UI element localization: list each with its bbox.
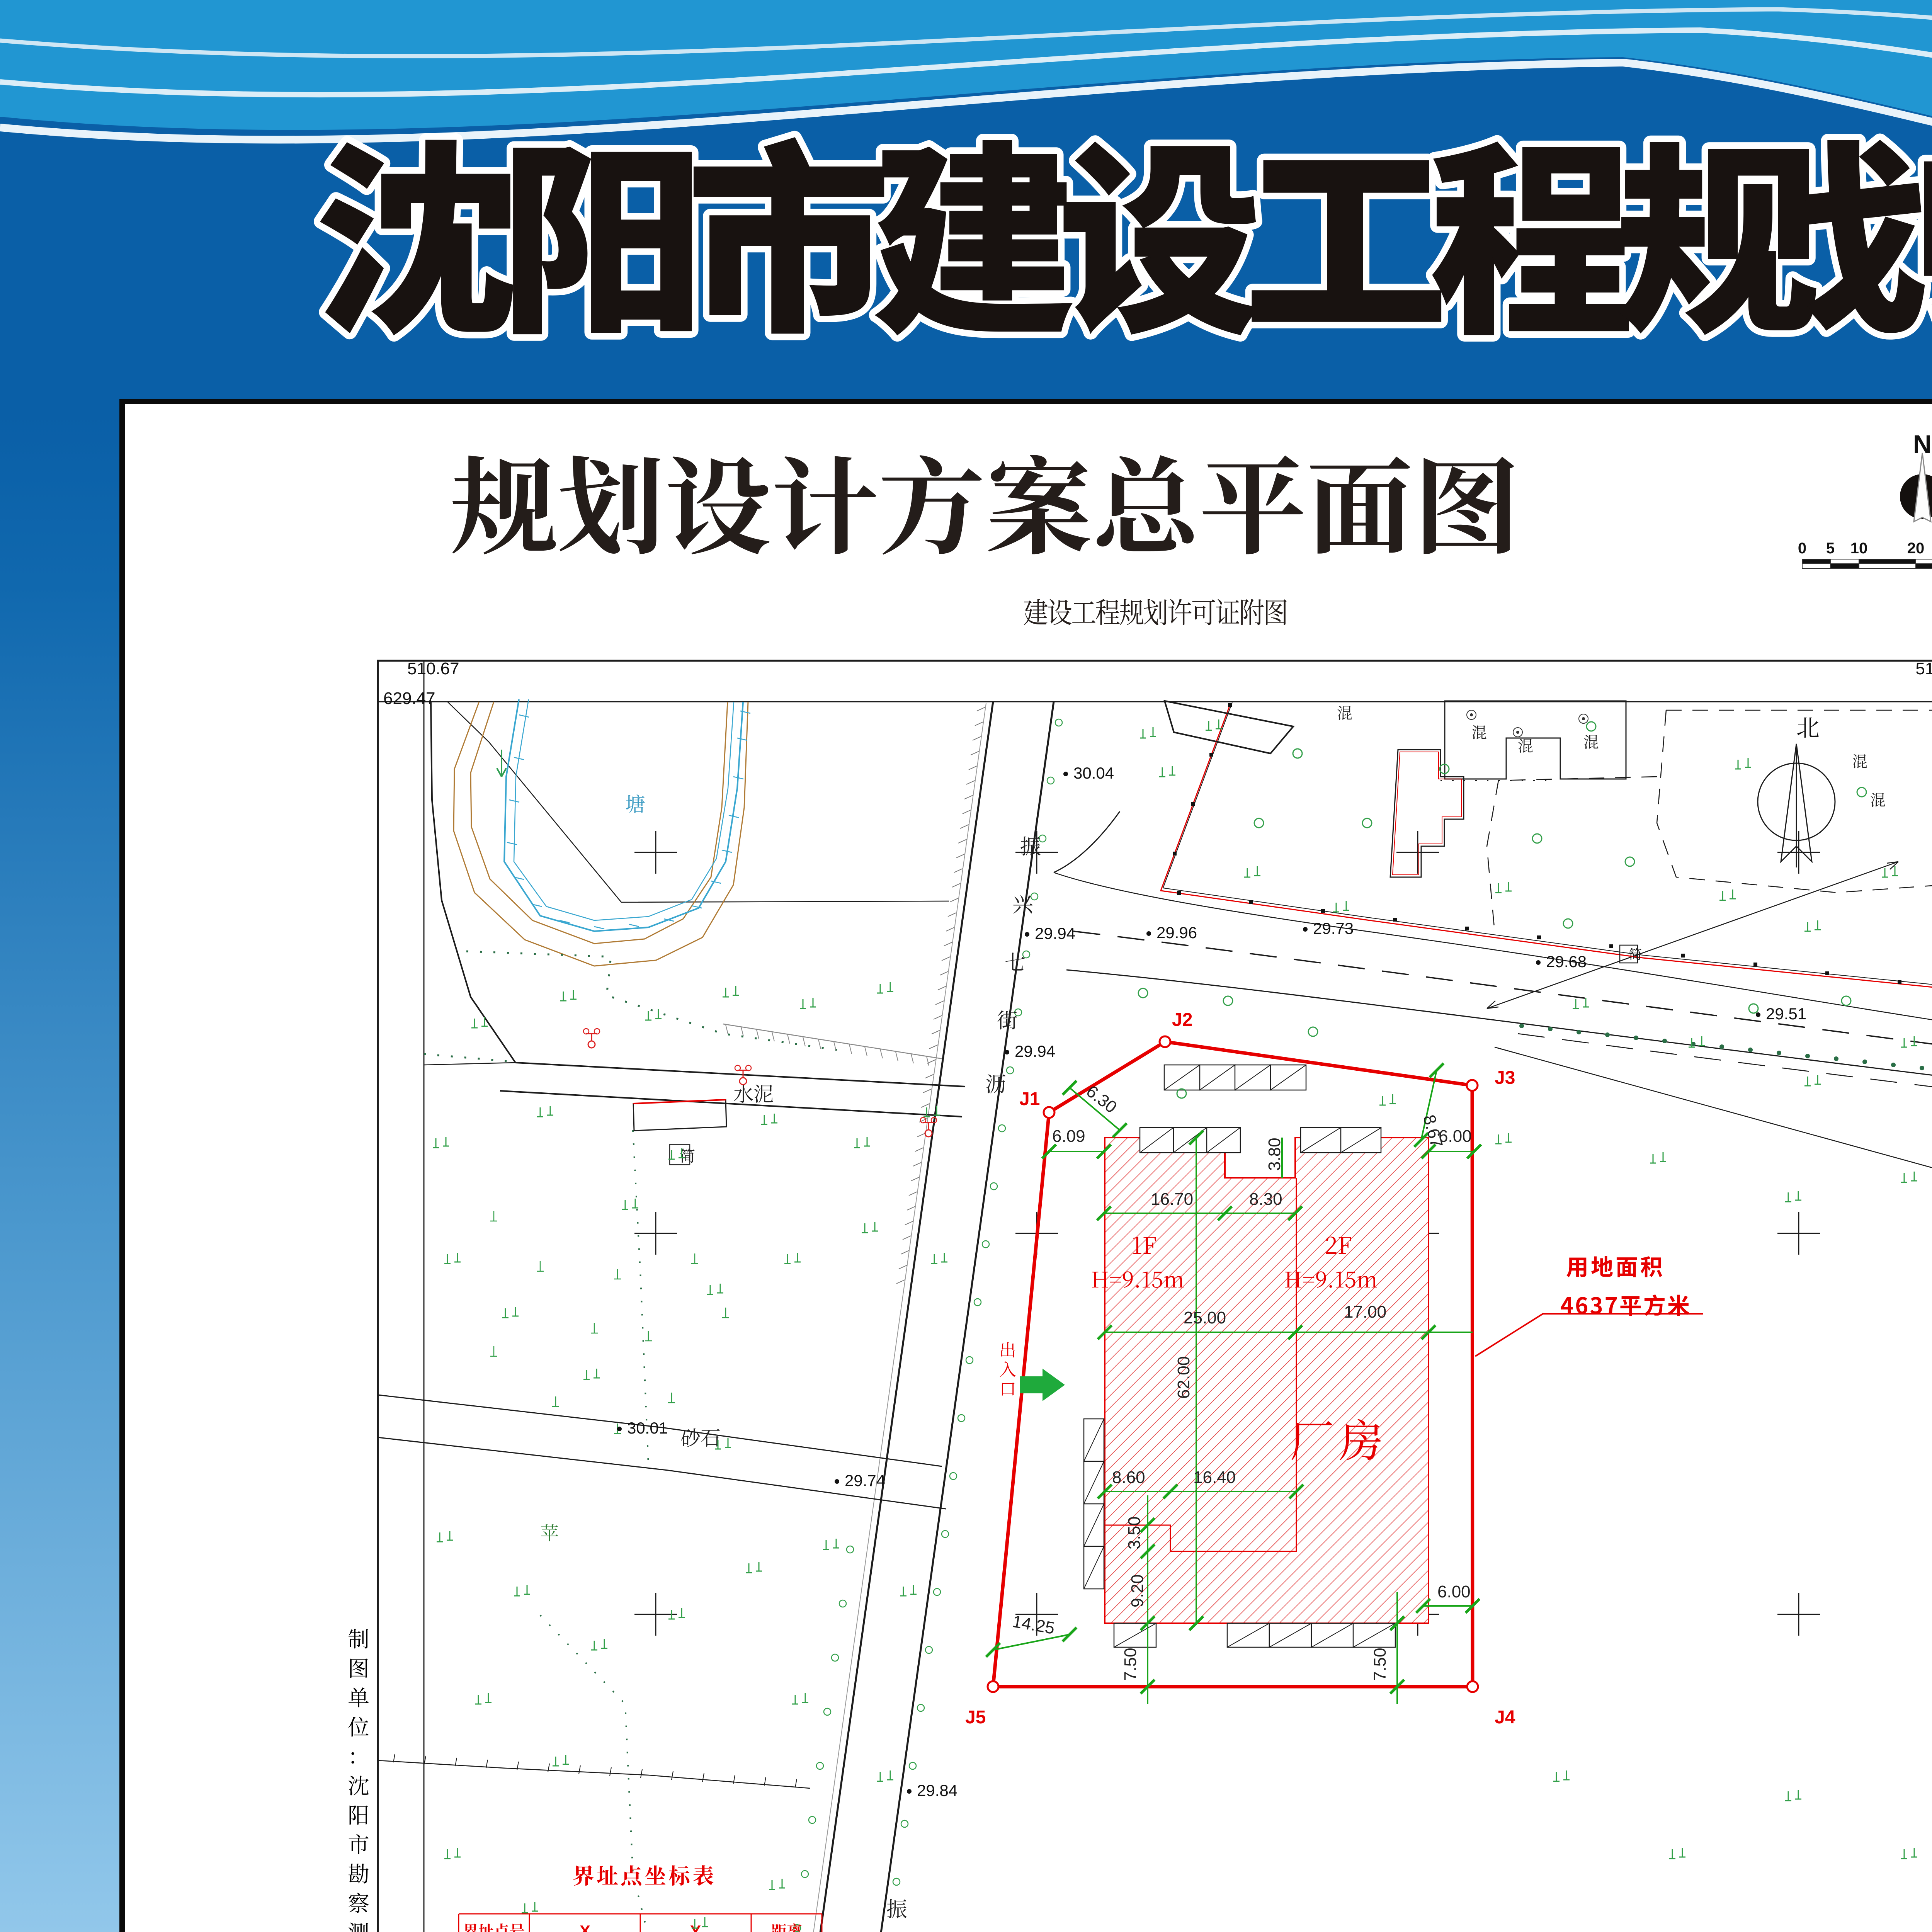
svg-text:629.47: 629.47	[383, 689, 435, 708]
svg-text:25.00: 25.00	[1184, 1308, 1226, 1327]
svg-text:7.50: 7.50	[1371, 1648, 1389, 1681]
svg-text:5: 5	[1826, 540, 1835, 557]
svg-text:J4: J4	[1495, 1707, 1515, 1728]
svg-text:J5: J5	[965, 1707, 986, 1728]
svg-text:29.51: 29.51	[1766, 1005, 1806, 1023]
svg-text:16.70: 16.70	[1151, 1190, 1193, 1209]
svg-text:510.86: 510.86	[1915, 659, 1932, 678]
svg-text:29.94: 29.94	[1035, 924, 1075, 942]
svg-text:3.80: 3.80	[1265, 1138, 1284, 1171]
svg-text:Y: Y	[690, 1922, 701, 1932]
svg-text:510.67: 510.67	[407, 659, 459, 678]
svg-text:6.00: 6.00	[1437, 1582, 1471, 1601]
svg-text:20: 20	[1907, 540, 1925, 557]
svg-text:9.20: 9.20	[1128, 1574, 1147, 1607]
svg-text:30.01: 30.01	[627, 1419, 668, 1437]
svg-text:17.00: 17.00	[1344, 1303, 1386, 1321]
svg-text:8.30: 8.30	[1249, 1190, 1282, 1209]
svg-text:X: X	[580, 1922, 590, 1932]
svg-text:7.50: 7.50	[1121, 1648, 1140, 1681]
svg-text:16.40: 16.40	[1193, 1468, 1236, 1487]
svg-text:3.50: 3.50	[1125, 1516, 1144, 1549]
svg-text:29.73: 29.73	[1313, 919, 1354, 937]
svg-text:29.74: 29.74	[845, 1471, 885, 1490]
svg-text:29.94: 29.94	[1015, 1042, 1055, 1060]
svg-text:10: 10	[1850, 540, 1868, 557]
svg-text:62.00: 62.00	[1174, 1356, 1193, 1399]
svg-text:29.96: 29.96	[1156, 923, 1197, 942]
svg-text:J1: J1	[1019, 1089, 1040, 1109]
svg-text:J2: J2	[1172, 1010, 1192, 1030]
svg-text:29.84: 29.84	[917, 1781, 957, 1799]
svg-text:8.60: 8.60	[1112, 1468, 1145, 1487]
svg-text:0: 0	[1798, 540, 1806, 557]
svg-text:6.09: 6.09	[1052, 1127, 1085, 1146]
svg-text:6.00: 6.00	[1439, 1127, 1472, 1146]
svg-text:J3: J3	[1495, 1068, 1515, 1088]
svg-text:29.68: 29.68	[1546, 952, 1587, 971]
svg-text:30.04: 30.04	[1073, 764, 1114, 782]
